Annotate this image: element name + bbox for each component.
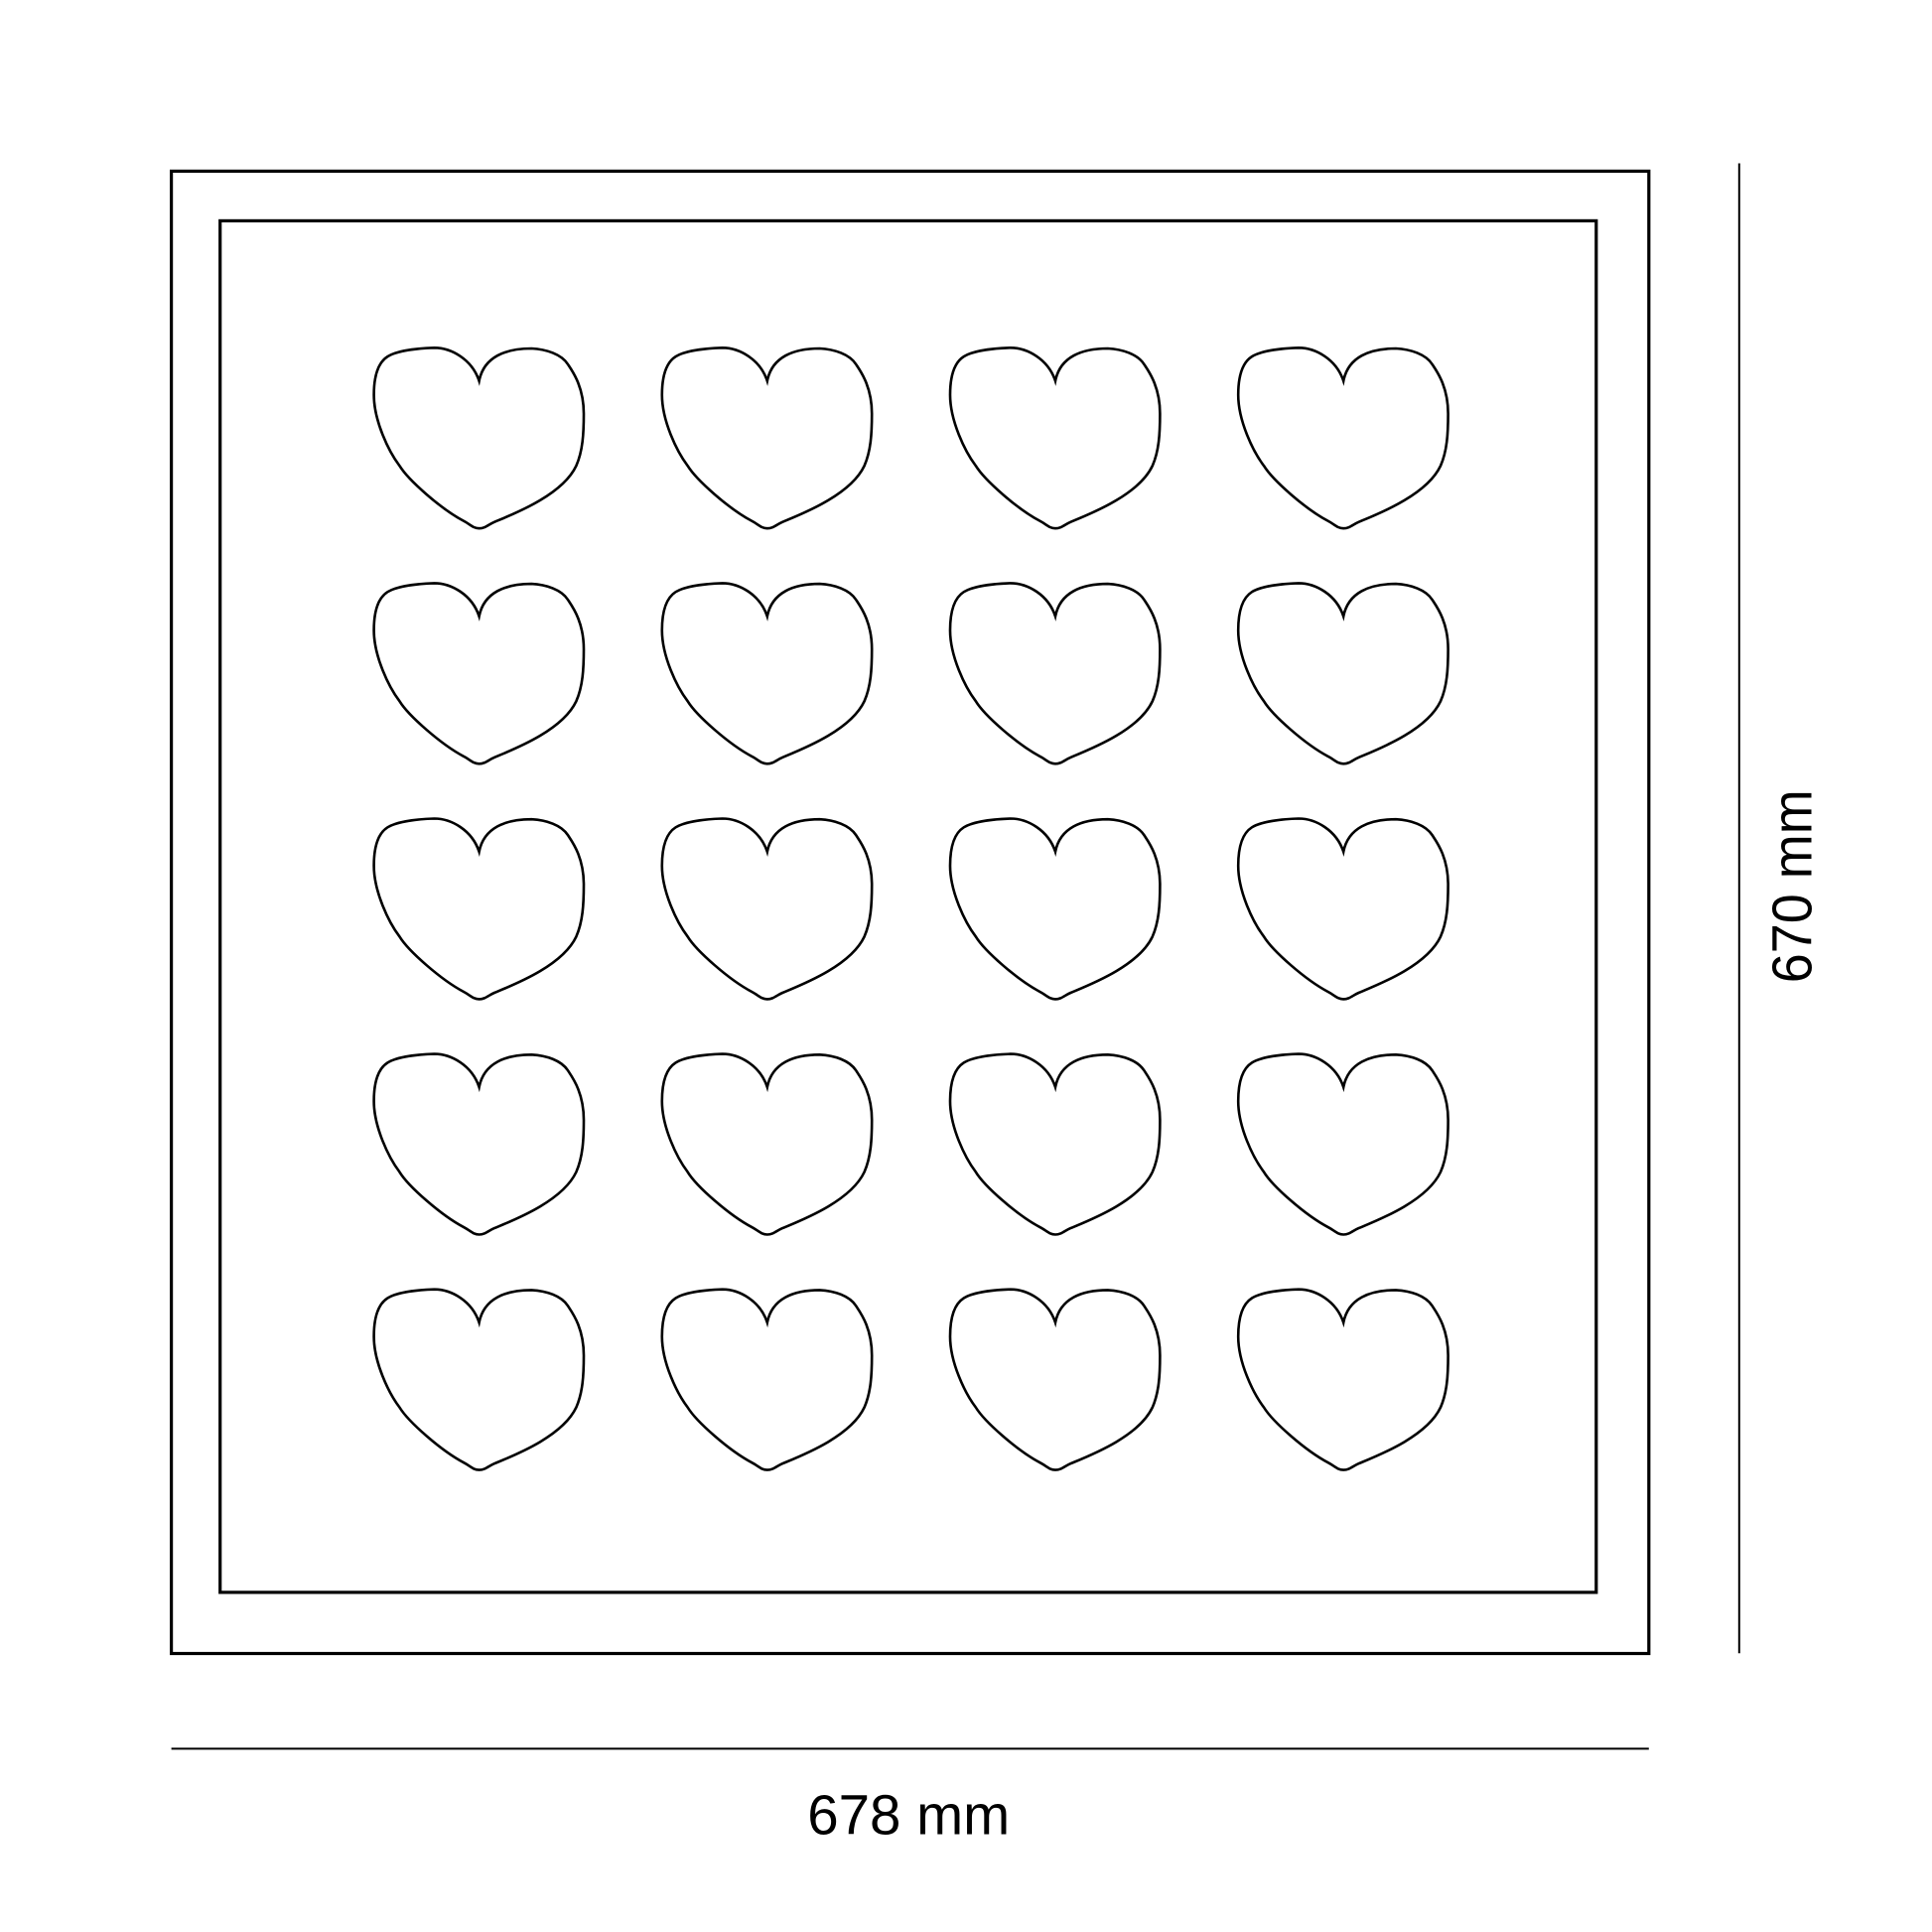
svg-text:678 mm: 678 mm bbox=[807, 1784, 1010, 1847]
svg-text:670 mm: 670 mm bbox=[1762, 789, 1825, 983]
